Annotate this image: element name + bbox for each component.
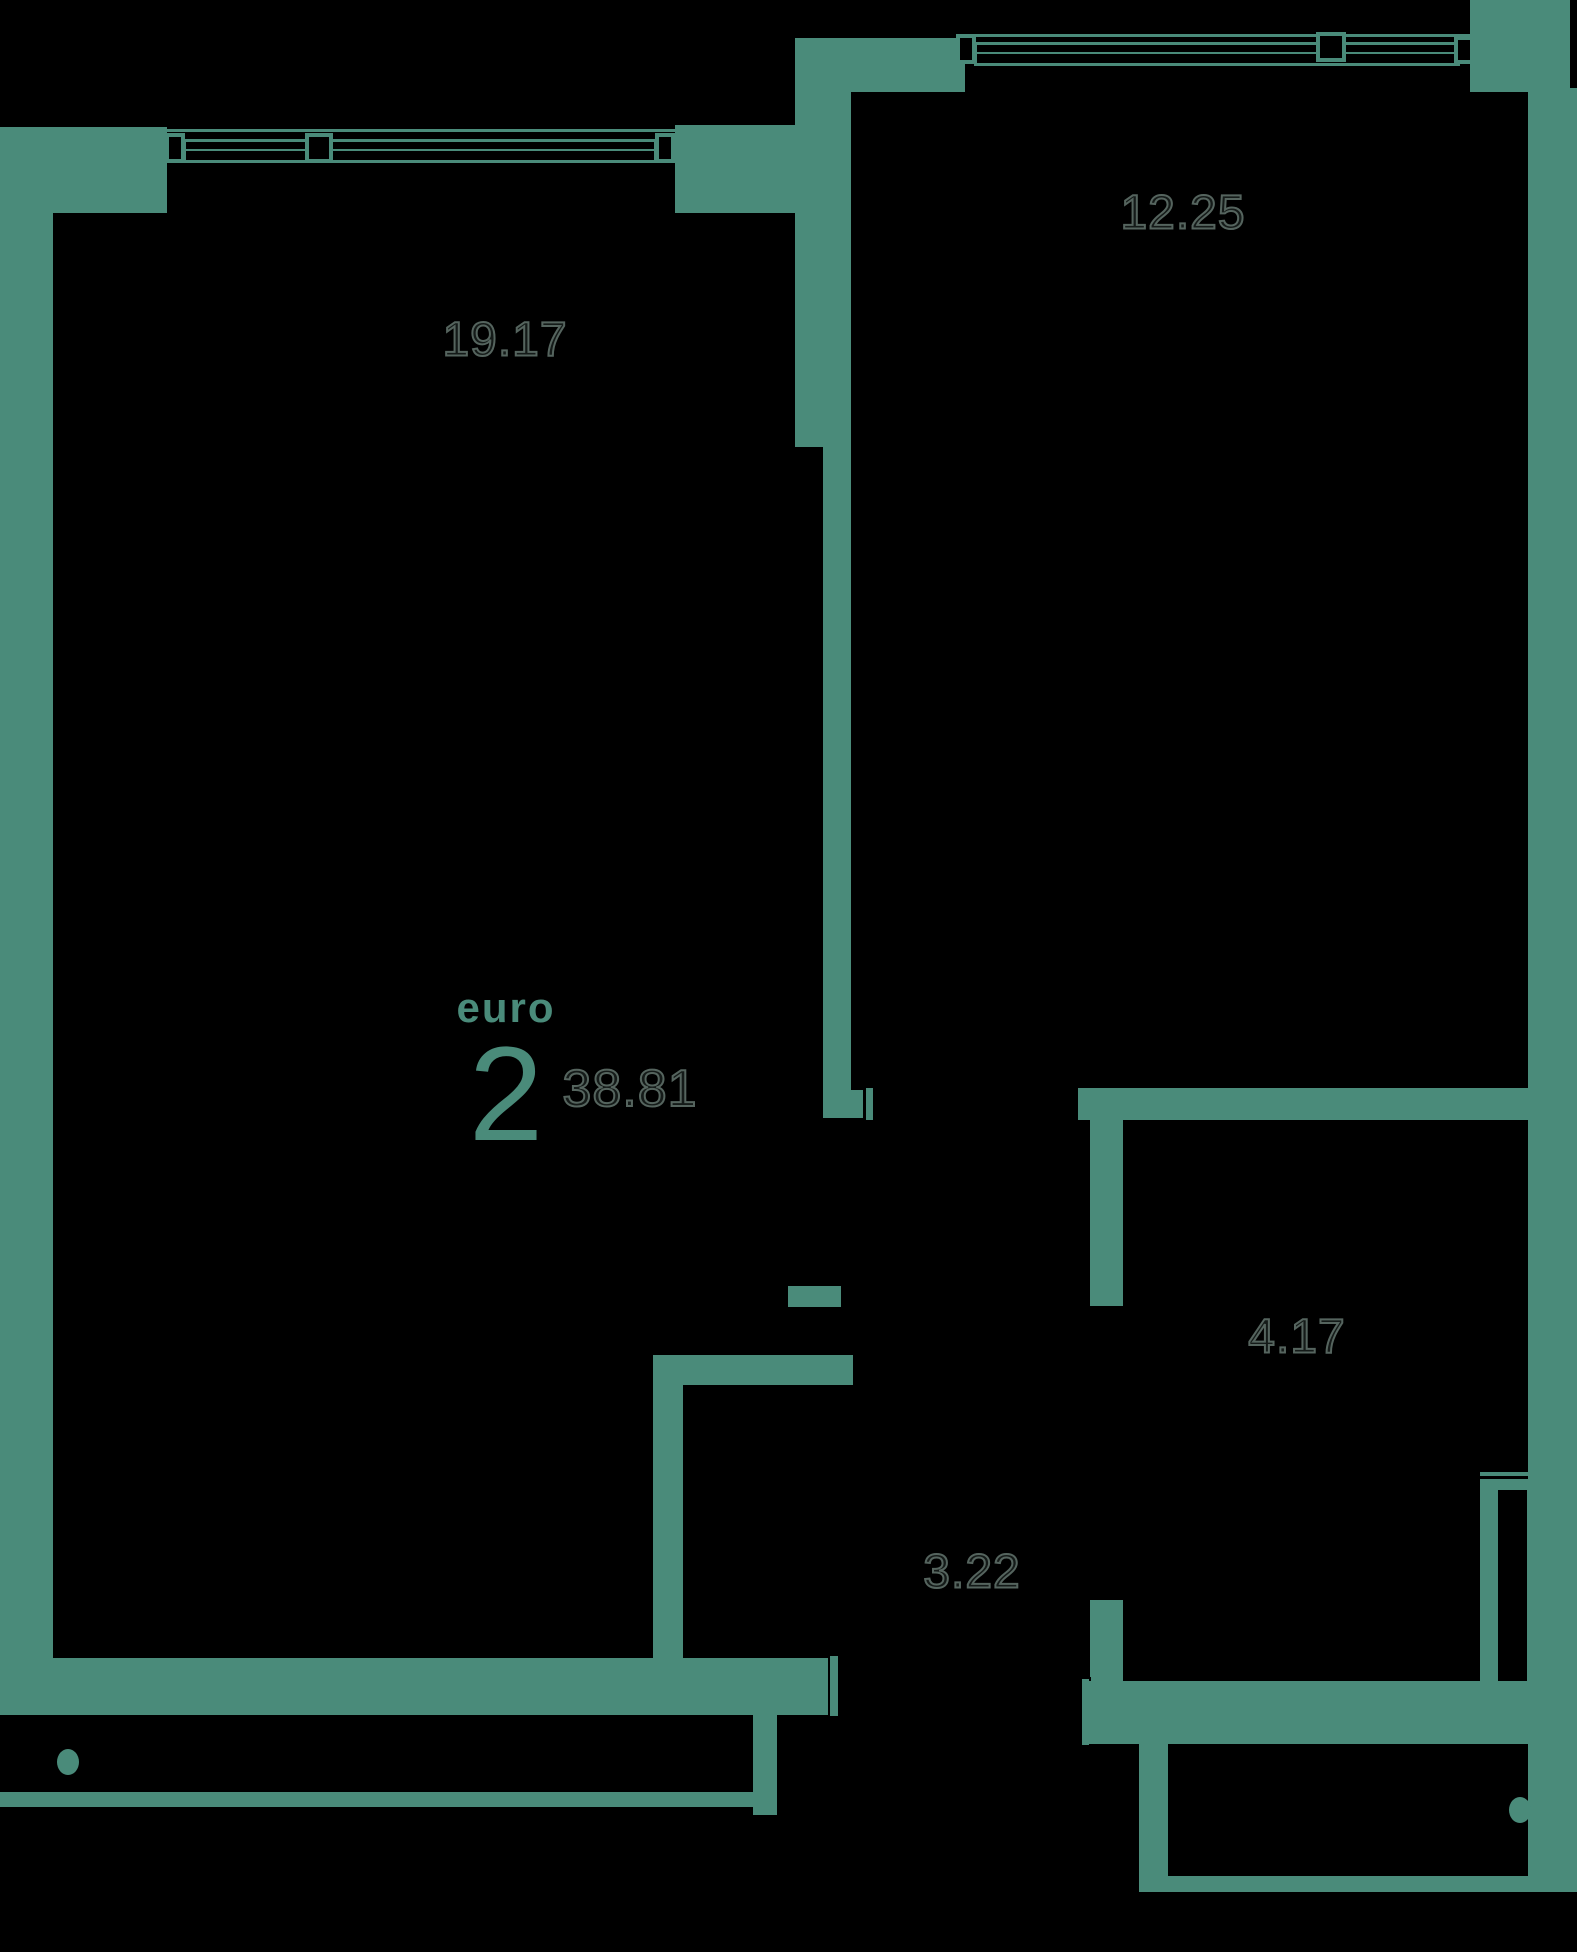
wall-bathroom-left-upper: [1090, 1120, 1123, 1306]
bedroom-window: [958, 26, 1474, 70]
window-mid-line: [183, 149, 657, 151]
balcony-right-divider: [1139, 1744, 1168, 1876]
wall-hallway-top: [653, 1355, 853, 1385]
window-pivot-icon: [305, 133, 333, 163]
door-axis-dot: [1509, 1797, 1531, 1823]
window-frame: [183, 139, 657, 163]
door-jamb: [864, 1086, 875, 1122]
room-area-label-hallway: 3.22: [923, 1545, 1020, 1600]
wall-hallway-left: [653, 1385, 683, 1658]
wall-bedroom-bottom: [1083, 1088, 1530, 1120]
wall-right-outer: [1528, 88, 1577, 1876]
window-frame: [974, 42, 1460, 66]
floor-plan-canvas: 19.17 12.25 4.17 3.22 euro 2 38.81: [0, 0, 1577, 1952]
wall-bottom-hallway: [1086, 1681, 1528, 1744]
room-area-label-bathroom: 4.17: [1248, 1310, 1345, 1365]
window-pivot-icon: [655, 133, 675, 163]
room-area-label-living: 19.17: [442, 313, 567, 368]
window-outer-line: [167, 129, 675, 132]
wall-between-rooms-lower: [823, 447, 851, 1090]
apartment-room-count: 2: [469, 1028, 544, 1162]
wall-bottom-living: [0, 1658, 830, 1715]
room-area-label-bedroom: 12.25: [1120, 186, 1245, 241]
apartment-total-area: 38.81: [562, 1059, 697, 1119]
vent-shaft-slot: [1480, 1476, 1528, 1479]
balcony-right-edge-line: [1139, 1876, 1577, 1892]
living-room-window: [167, 127, 675, 171]
window-mid-line: [974, 52, 1460, 54]
door-axis-dot: [57, 1749, 79, 1775]
window-pivot-icon: [1454, 36, 1474, 64]
window-pivot-icon: [165, 133, 185, 163]
wall-top-left-corner: [0, 127, 167, 213]
wall-bedroom-top-left-block: [795, 38, 965, 92]
window-outer-line: [964, 34, 1472, 37]
wall-bedroom-top-right-block: [1470, 0, 1570, 92]
vent-shaft: [1480, 1472, 1530, 1681]
window-pivot-icon: [1316, 32, 1346, 62]
window-pivot-icon: [956, 34, 976, 64]
wall-stub-living-door: [788, 1286, 841, 1307]
door-jamb: [828, 1654, 840, 1718]
wall-bedroom-bottom-left-foot: [823, 1090, 863, 1118]
wall-left-outer: [0, 127, 53, 1715]
wall-between-rooms-upper: [795, 38, 851, 447]
wall-top-right-segment-living: [675, 125, 795, 213]
vent-shaft-cavity: [1498, 1490, 1527, 1681]
wall-bathroom-left-lower: [1090, 1600, 1123, 1681]
balcony-left-edge-line: [0, 1792, 777, 1807]
